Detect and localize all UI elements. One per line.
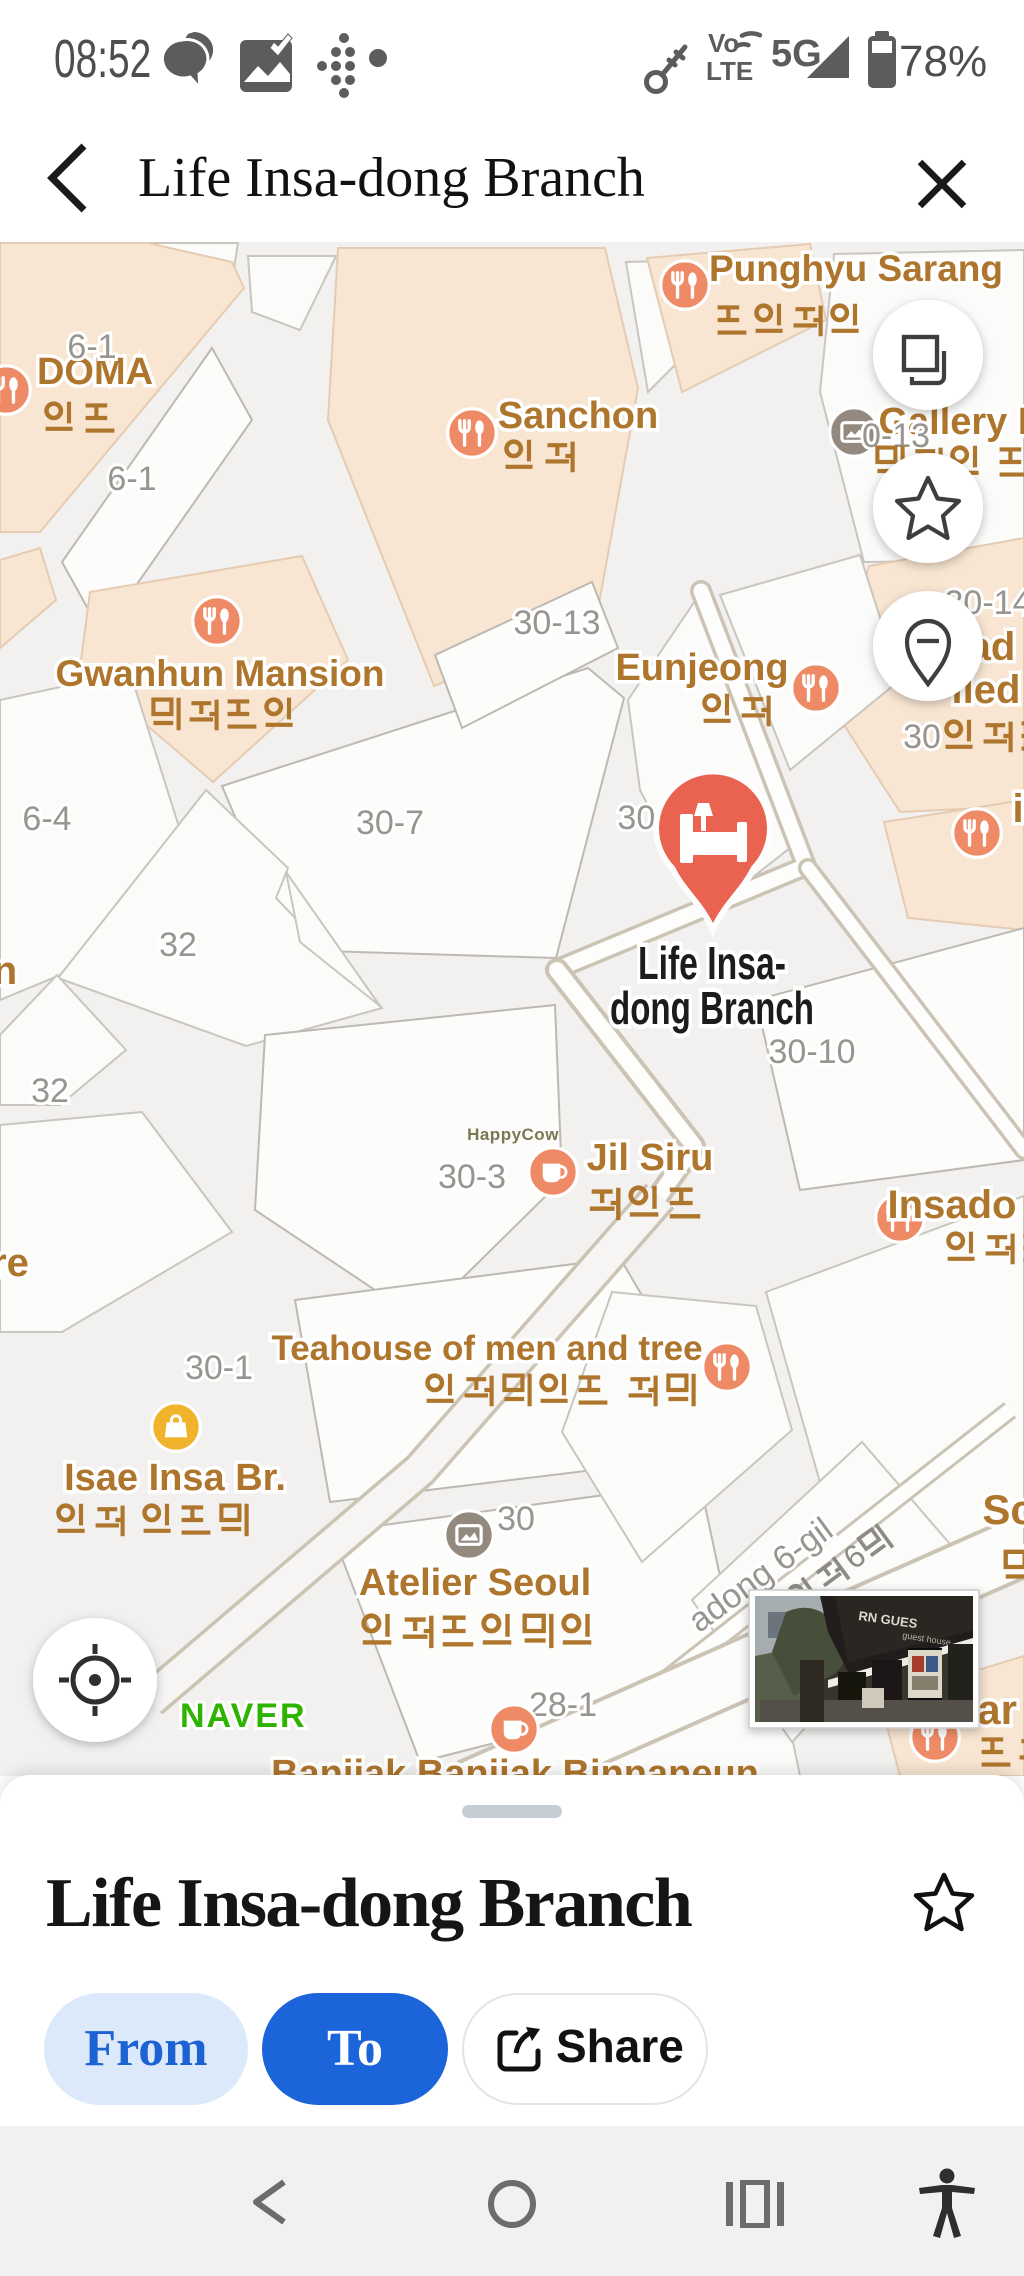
svg-text:6-1: 6-1 [107, 460, 156, 498]
svg-text:6-1: 6-1 [67, 328, 116, 366]
svg-text:Punghyu Sarang: Punghyu Sarang [709, 248, 1003, 289]
svg-text:LTE: LTE [706, 56, 753, 86]
svg-text:30: 30 [497, 1500, 535, 1538]
svg-text:6-4: 6-4 [22, 800, 71, 838]
svg-text:32: 32 [159, 926, 197, 964]
svg-text:HappyCow: HappyCow [467, 1125, 559, 1144]
svg-text:re: re [0, 1241, 29, 1285]
svg-text:Jil Siru: Jil Siru [587, 1137, 714, 1179]
svg-text:i: i [1012, 787, 1023, 831]
svg-text:30: 30 [903, 718, 941, 756]
svg-text:Teahouse of men and tree: Teahouse of men and tree [271, 1329, 702, 1368]
svg-text:30-3: 30-3 [438, 1158, 506, 1196]
svg-text:30-1: 30-1 [185, 1349, 253, 1387]
svg-text:Gwanhun Mansion: Gwanhun Mansion [56, 653, 385, 694]
svg-text:Eunjeong: Eunjeong [615, 647, 788, 689]
svg-text:28-1: 28-1 [529, 1686, 597, 1724]
svg-text:Insado: Insado [888, 1183, 1017, 1227]
svg-text:n: n [0, 949, 17, 993]
svg-text:dong Branch: dong Branch [610, 982, 814, 1034]
svg-text:Vo: Vo [708, 28, 739, 58]
svg-text:NAVER: NAVER [180, 1697, 307, 1735]
svg-text:78%: 78% [899, 37, 987, 86]
svg-text:30-13: 30-13 [514, 604, 601, 642]
svg-text:30-7: 30-7 [356, 804, 424, 842]
svg-text:Isae Insa Br.: Isae Insa Br. [64, 1457, 286, 1499]
svg-text:32: 32 [31, 1072, 69, 1110]
svg-text:30-10: 30-10 [769, 1033, 856, 1071]
svg-text:Sc: Sc [982, 1486, 1024, 1533]
svg-text:Sanchon: Sanchon [498, 395, 658, 437]
svg-text:Atelier Seoul: Atelier Seoul [359, 1562, 591, 1604]
svg-text:5G: 5G [771, 33, 822, 75]
svg-text:Banjjak Banjjak Binnaneun: Banjjak Banjjak Binnaneun [271, 1753, 759, 1776]
